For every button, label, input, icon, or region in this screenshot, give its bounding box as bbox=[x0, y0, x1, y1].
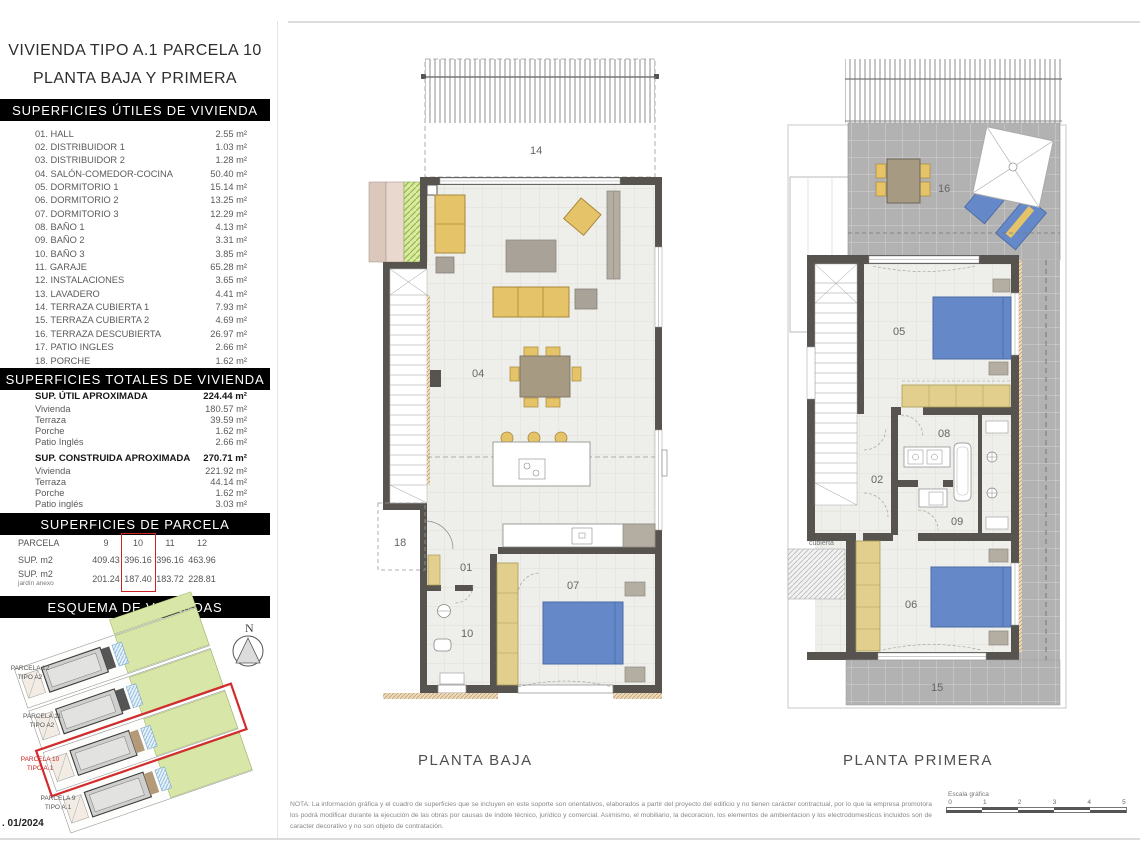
parcela-12-label: PARCELA 12 TIPO A2 bbox=[2, 665, 58, 682]
planta-baja-caption: PLANTA BAJA bbox=[418, 752, 533, 769]
room-label-06: 06 bbox=[905, 599, 917, 611]
room-area: 3.31 m² bbox=[215, 235, 247, 245]
table-row: 14. TERRAZA CUBIERTA 1 7.93 m² bbox=[35, 300, 247, 313]
table-row: 10. BAÑO 3 3.85 m² bbox=[35, 247, 247, 260]
side-annex bbox=[369, 182, 427, 262]
total-group-header: SUP. ÚTIL APROXIMADA 224.44 m² bbox=[35, 390, 247, 403]
table-row: 13. LAVADERO 4.41 m² bbox=[35, 287, 247, 300]
bottom-rule bbox=[0, 838, 1140, 840]
plan-date: . 01/2024 bbox=[2, 818, 44, 829]
scale-ticks: 012345 bbox=[946, 799, 1128, 806]
room-label-08: 08 bbox=[938, 428, 950, 440]
table-row: 12. INSTALACIONES 3.65 m² bbox=[35, 274, 247, 287]
planta-baja-plan: 14 bbox=[368, 55, 688, 715]
room-area: 4.69 m² bbox=[215, 315, 247, 325]
room-name: 01. HALL bbox=[35, 129, 74, 139]
room-label-07: 07 bbox=[567, 580, 579, 592]
parcela-9-label: PARCELA 9 TIPO A.1 bbox=[30, 795, 86, 812]
cubierta-hatch bbox=[788, 549, 845, 599]
room-area: 26.97 m² bbox=[210, 329, 247, 339]
plan-sheet: VIVIENDA TIPO A.1 PARCELA 10 PLANTA BAJA… bbox=[0, 0, 1140, 860]
room-area: 15.14 m² bbox=[210, 182, 247, 192]
room-area: 12.29 m² bbox=[210, 209, 247, 219]
room-name: 10. BAÑO 3 bbox=[35, 249, 85, 259]
room-name: 15. TERRAZA CUBIERTA 2 bbox=[35, 315, 149, 325]
room-name: 07. DORMITORIO 3 bbox=[35, 209, 119, 219]
section-header-superficies-utiles: SUPERFICIES ÚTILES DE VIVIENDA bbox=[0, 99, 270, 121]
total-sub-row: Terraza 44.14 m² bbox=[35, 476, 247, 487]
room-area: 1.62 m² bbox=[215, 356, 247, 366]
total-sub-row: Porche 1.62 m² bbox=[35, 425, 247, 436]
table-row: 16. TERRAZA DESCUBIERTA 26.97 m² bbox=[35, 327, 247, 340]
total-sub-row: Terraza 39.59 m² bbox=[35, 414, 247, 425]
table-row: 15. TERRAZA CUBIERTA 2 4.69 m² bbox=[35, 314, 247, 327]
room-name: 13. LAVADERO bbox=[35, 289, 100, 299]
pergola-terraza-14 bbox=[421, 59, 659, 177]
room-area: 1.28 m² bbox=[215, 155, 247, 165]
scale-tick: 4 bbox=[1085, 799, 1093, 806]
table-row: 08. BAÑO 1 4.13 m² bbox=[35, 220, 247, 233]
north-label: N bbox=[245, 621, 254, 635]
room-label-09: 09 bbox=[951, 516, 963, 528]
sheet-title-line1: VIVIENDA TIPO A.1 PARCELA 10 bbox=[0, 42, 270, 60]
cubierta-label: cubierta bbox=[809, 540, 834, 547]
terraza-16 bbox=[848, 123, 1060, 260]
room-name: 08. BAÑO 1 bbox=[35, 222, 85, 232]
planta-primera-caption: PLANTA PRIMERA bbox=[843, 752, 993, 769]
table-row: 11. GARAJE 65.28 m² bbox=[35, 260, 247, 273]
room-area: 7.93 m² bbox=[215, 302, 247, 312]
table-row: 18. PORCHE 1.62 m² bbox=[35, 354, 247, 367]
table-row: 07. DORMITORIO 3 12.29 m² bbox=[35, 207, 247, 220]
room-area: 4.13 m² bbox=[215, 222, 247, 232]
table-row: 03. DISTRIBUIDOR 2 1.28 m² bbox=[35, 154, 247, 167]
kitchen-counter bbox=[503, 524, 655, 547]
total-sub-row: Vivienda 221.92 m² bbox=[35, 465, 247, 476]
section-header-superficies-parcela: SUPERFICIES DE PARCELA bbox=[0, 513, 270, 535]
total-sub-row: Porche 1.62 m² bbox=[35, 487, 247, 498]
room-label-02: 02 bbox=[871, 474, 883, 486]
room-area: 3.85 m² bbox=[215, 249, 247, 259]
scale-tick: 1 bbox=[981, 799, 989, 806]
room-label-10: 10 bbox=[461, 628, 473, 640]
table-row: 04. SALÓN-COMEDOR-COCINA 50.40 m² bbox=[35, 167, 247, 180]
scale-bar: Escala gráfica 012345 bbox=[946, 791, 1136, 815]
table-row: 06. DORMITORIO 2 13.25 m² bbox=[35, 194, 247, 207]
room-name: 06. DORMITORIO 2 bbox=[35, 195, 119, 205]
planta-primera-plan: 16 bbox=[783, 55, 1113, 715]
room-name: 05. DORMITORIO 1 bbox=[35, 182, 119, 192]
room-name: 11. GARAJE bbox=[35, 262, 87, 272]
total-group-header: SUP. CONSTRUIDA APROXIMADA 270.71 m² bbox=[35, 452, 247, 465]
room-name: 17. PATIO INGLES bbox=[35, 342, 114, 352]
room-label-18: 18 bbox=[394, 537, 406, 549]
room-area: 50.40 m² bbox=[210, 169, 247, 179]
room-area: 4.41 m² bbox=[215, 289, 247, 299]
total-sub-row: Vivienda 180.57 m² bbox=[35, 403, 247, 414]
table-row: 17. PATIO INGLES 2.66 m² bbox=[35, 341, 247, 354]
pergola-roof bbox=[845, 59, 1062, 123]
room-label-04: 04 bbox=[472, 368, 484, 380]
scale-ruler bbox=[946, 806, 1132, 815]
scale-tick: 3 bbox=[1050, 799, 1058, 806]
room-area: 2.66 m² bbox=[215, 342, 247, 352]
sheet-title-line2: PLANTA BAJA Y PRIMERA bbox=[0, 70, 270, 88]
total-sub-row: Patio Inglés 2.66 m² bbox=[35, 436, 247, 447]
scale-label: Escala gráfica bbox=[948, 791, 1136, 798]
superficies-utiles-table: 01. HALL 2.55 m² 02. DISTRIBUIDOR 1 1.03… bbox=[35, 127, 247, 367]
room-name: 09. BAÑO 2 bbox=[35, 235, 85, 245]
parcela-10-label: PARCELA 10 TIPO A.1 bbox=[12, 756, 68, 773]
room-area: 3.65 m² bbox=[215, 275, 247, 285]
scale-tick: 0 bbox=[946, 799, 954, 806]
room-area: 2.55 m² bbox=[215, 129, 247, 139]
room-name: 02. DISTRIBUIDOR 1 bbox=[35, 142, 125, 152]
section-header-superficies-totales: SUPERFICIES TOTALES DE VIVIENDA bbox=[0, 368, 270, 390]
scale-tick: 2 bbox=[1016, 799, 1024, 806]
staircase bbox=[815, 264, 857, 505]
room-label-16: 16 bbox=[938, 183, 950, 195]
superficies-totales-table: SUP. ÚTIL APROXIMADA 224.44 m² Vivienda … bbox=[35, 390, 247, 509]
table-row: 02. DISTRIBUIDOR 1 1.03 m² bbox=[35, 140, 247, 153]
room-name: 04. SALÓN-COMEDOR-COCINA bbox=[35, 169, 173, 179]
parcela-11-label: PARCELA 11 TIPO A2 bbox=[14, 713, 70, 730]
room-area: 65.28 m² bbox=[210, 262, 247, 272]
top-rule bbox=[288, 21, 1140, 23]
room-label-01: 01 bbox=[460, 562, 472, 574]
room-name: 14. TERRAZA CUBIERTA 1 bbox=[35, 302, 149, 312]
staircase bbox=[390, 269, 430, 503]
room-label-15: 15 bbox=[931, 682, 943, 694]
room-name: 16. TERRAZA DESCUBIERTA bbox=[35, 329, 161, 339]
scale-tick: 5 bbox=[1120, 799, 1128, 806]
table-row: 01. HALL 2.55 m² bbox=[35, 127, 247, 140]
room-label-14: 14 bbox=[530, 145, 542, 157]
total-sub-row: Patio inglés 3.03 m² bbox=[35, 498, 247, 509]
room-area: 1.03 m² bbox=[215, 142, 247, 152]
highlight-parcela-10 bbox=[121, 533, 156, 592]
legal-note: NOTA: La información gráfica y el cuadro… bbox=[290, 799, 932, 832]
north-compass-icon: N bbox=[226, 620, 270, 672]
room-name: 03. DISTRIBUIDOR 2 bbox=[35, 155, 125, 165]
table-row: 05. DORMITORIO 1 15.14 m² bbox=[35, 180, 247, 193]
room-label-05: 05 bbox=[893, 326, 905, 338]
shade-sail bbox=[973, 127, 1054, 208]
panel-divider bbox=[277, 21, 278, 838]
room-name: 12. INSTALACIONES bbox=[35, 275, 124, 285]
room-name: 18. PORCHE bbox=[35, 356, 90, 366]
room-area: 13.25 m² bbox=[210, 195, 247, 205]
table-row: 09. BAÑO 2 3.31 m² bbox=[35, 234, 247, 247]
